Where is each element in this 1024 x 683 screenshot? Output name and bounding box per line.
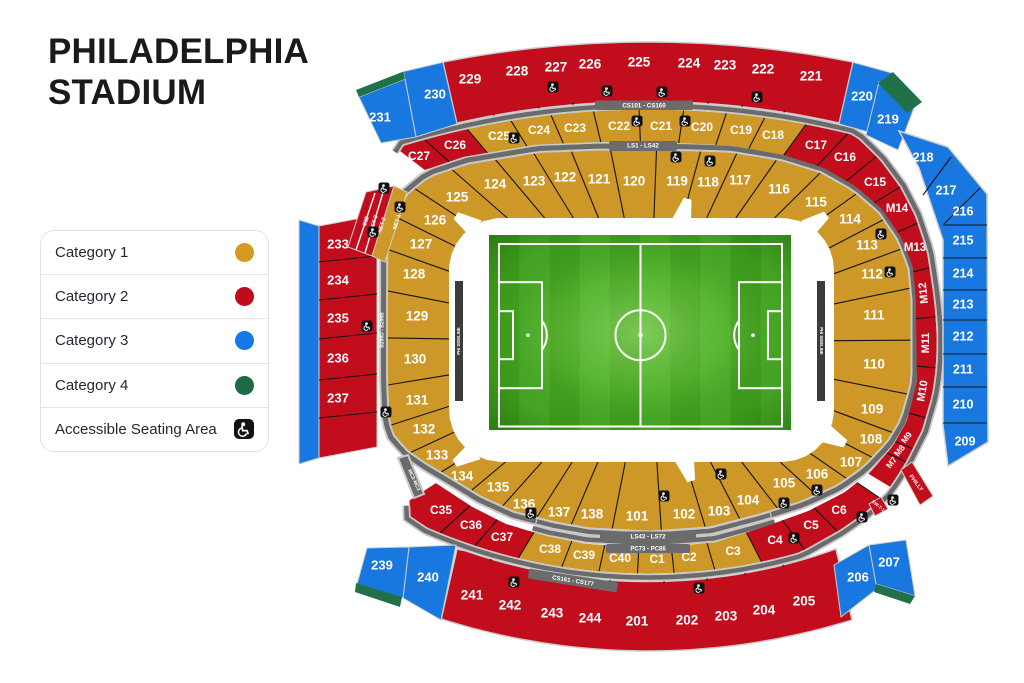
svg-text:127: 127	[410, 237, 433, 252]
svg-text:113: 113	[856, 238, 878, 253]
svg-text:129: 129	[406, 309, 429, 324]
svg-text:104: 104	[737, 493, 760, 508]
svg-text:C20: C20	[691, 120, 713, 134]
svg-text:C5: C5	[803, 518, 819, 532]
svg-text:233: 233	[327, 236, 349, 251]
svg-text:237: 237	[327, 390, 349, 405]
svg-text:225: 225	[628, 55, 651, 70]
svg-text:M11: M11	[920, 333, 932, 354]
svg-text:236: 236	[327, 350, 349, 365]
svg-text:114: 114	[839, 212, 861, 227]
svg-text:120: 120	[623, 174, 646, 189]
svg-text:C22: C22	[608, 119, 630, 133]
svg-text:123: 123	[523, 174, 546, 189]
svg-text:132: 132	[413, 422, 436, 437]
svg-text:105: 105	[773, 476, 796, 491]
svg-text:C6: C6	[831, 503, 847, 517]
svg-text:LS43 - LS72: LS43 - LS72	[630, 534, 666, 541]
svg-text:106: 106	[806, 467, 829, 482]
svg-text:218: 218	[913, 150, 934, 164]
svg-text:234: 234	[327, 272, 349, 287]
svg-text:C18: C18	[762, 128, 784, 142]
svg-text:C16: C16	[834, 150, 856, 164]
svg-text:103: 103	[708, 504, 731, 519]
svg-text:C35: C35	[430, 503, 452, 517]
svg-text:M12: M12	[917, 282, 931, 305]
svg-text:117: 117	[729, 173, 751, 188]
svg-text:124: 124	[484, 177, 507, 192]
svg-text:224: 224	[678, 56, 701, 71]
svg-text:LS1 - LS42: LS1 - LS42	[627, 143, 659, 150]
svg-text:215: 215	[953, 233, 974, 247]
svg-text:130: 130	[404, 352, 427, 367]
svg-text:205: 205	[793, 594, 816, 609]
svg-text:217: 217	[936, 183, 957, 197]
svg-text:CS101 - CS160: CS101 - CS160	[622, 103, 666, 110]
svg-text:PC73 - PC86: PC73 - PC86	[630, 547, 666, 553]
svg-text:107: 107	[840, 455, 863, 470]
svg-text:230: 230	[424, 86, 446, 101]
svg-text:C36: C36	[460, 518, 482, 532]
svg-text:231: 231	[369, 109, 391, 124]
svg-text:241: 241	[461, 588, 484, 603]
svg-text:220: 220	[851, 88, 873, 103]
svg-text:214: 214	[953, 266, 974, 280]
svg-text:C17: C17	[805, 138, 827, 152]
svg-text:B299D - B299B: B299D - B299B	[379, 312, 385, 348]
svg-text:C26: C26	[444, 138, 466, 152]
svg-text:115: 115	[805, 195, 827, 210]
svg-text:223: 223	[714, 58, 737, 73]
svg-text:M14: M14	[886, 203, 909, 215]
svg-text:C40: C40	[609, 551, 631, 565]
svg-text:C19: C19	[730, 123, 752, 137]
svg-text:C38: C38	[539, 542, 561, 556]
svg-text:206: 206	[847, 569, 869, 584]
svg-text:211: 211	[953, 362, 973, 376]
svg-text:228: 228	[506, 64, 529, 79]
svg-text:122: 122	[554, 170, 577, 185]
svg-text:244: 244	[579, 611, 602, 626]
svg-text:222: 222	[752, 62, 775, 77]
svg-text:207: 207	[878, 554, 900, 569]
svg-text:PHI SIDELINE: PHI SIDELINE	[819, 327, 824, 355]
svg-text:112: 112	[861, 267, 883, 282]
svg-text:212: 212	[953, 329, 974, 343]
svg-text:216: 216	[953, 204, 974, 218]
svg-text:229: 229	[459, 72, 482, 87]
svg-text:243: 243	[541, 606, 564, 621]
svg-text:133: 133	[426, 448, 449, 463]
svg-text:116: 116	[768, 182, 790, 197]
svg-text:C25: C25	[488, 129, 510, 143]
svg-text:M13: M13	[904, 242, 926, 254]
svg-text:131: 131	[406, 393, 429, 408]
svg-text:242: 242	[499, 598, 522, 613]
svg-text:108: 108	[860, 432, 883, 447]
svg-text:C21: C21	[650, 119, 672, 133]
svg-text:101: 101	[626, 509, 649, 524]
svg-text:203: 203	[715, 609, 738, 624]
svg-text:111: 111	[863, 308, 885, 323]
svg-text:219: 219	[877, 111, 899, 126]
svg-text:202: 202	[676, 613, 699, 628]
svg-text:135: 135	[487, 480, 510, 495]
svg-text:119: 119	[666, 174, 688, 189]
svg-text:C23: C23	[564, 121, 586, 135]
svg-text:240: 240	[417, 569, 439, 584]
svg-text:235: 235	[327, 310, 349, 325]
svg-text:C37: C37	[491, 530, 513, 544]
svg-text:210: 210	[953, 397, 974, 411]
svg-text:137: 137	[548, 505, 571, 520]
svg-text:C15: C15	[864, 175, 886, 189]
svg-text:128: 128	[403, 267, 426, 282]
svg-text:239: 239	[371, 557, 393, 572]
svg-text:201: 201	[626, 614, 649, 629]
svg-text:209: 209	[955, 434, 976, 448]
svg-text:C3: C3	[725, 544, 741, 558]
svg-text:109: 109	[861, 402, 884, 417]
svg-text:C4: C4	[767, 533, 783, 547]
svg-text:C39: C39	[573, 548, 595, 562]
svg-text:118: 118	[697, 175, 719, 190]
svg-text:102: 102	[673, 507, 696, 522]
svg-text:C24: C24	[528, 123, 550, 137]
svg-text:221: 221	[800, 69, 823, 84]
svg-text:125: 125	[446, 190, 469, 205]
svg-text:226: 226	[579, 57, 602, 72]
svg-text:138: 138	[581, 507, 604, 522]
svg-text:227: 227	[545, 60, 568, 75]
svg-text:126: 126	[424, 213, 447, 228]
svg-text:PHI SIDELINE: PHI SIDELINE	[456, 327, 461, 355]
svg-text:110: 110	[863, 357, 885, 372]
svg-text:C1: C1	[649, 552, 665, 566]
svg-text:213: 213	[953, 297, 974, 311]
svg-text:204: 204	[753, 603, 776, 618]
svg-text:C27: C27	[408, 149, 430, 163]
svg-text:121: 121	[588, 172, 611, 187]
